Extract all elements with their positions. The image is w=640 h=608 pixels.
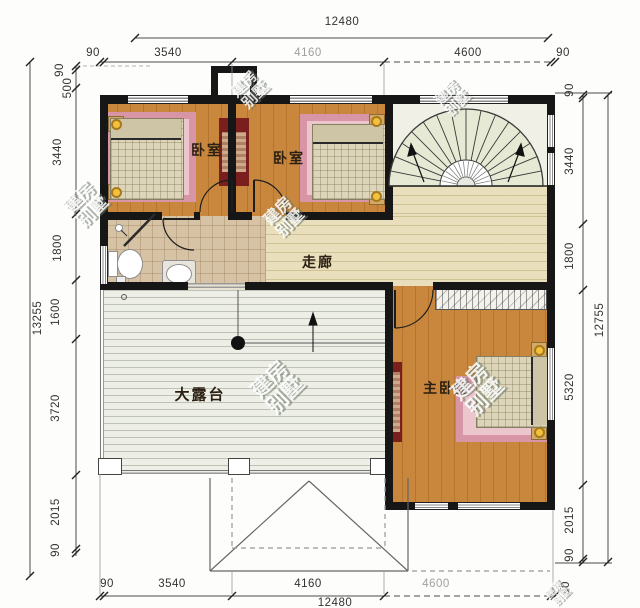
plan-linework <box>0 0 640 608</box>
dim-label: 3440 <box>52 138 64 166</box>
dim-label: 90 <box>50 543 62 557</box>
room-label-master-bedroom: 主卧室 <box>423 378 471 398</box>
dim-right-total: 12755 <box>594 303 606 337</box>
porch-roof <box>210 478 550 571</box>
dim-label: 90 <box>556 47 570 59</box>
dim-label: 1800 <box>52 234 64 262</box>
dim-label: 3540 <box>158 578 186 590</box>
dim-label: 4600 <box>422 578 450 590</box>
dim-label: 90 <box>564 83 576 97</box>
terrace-linework <box>122 290 386 352</box>
dim-bottom-total: 12480 <box>318 597 352 608</box>
dim-label: 2015 <box>50 498 62 526</box>
dim-label: 90 <box>560 581 572 595</box>
room-label-bedroom-left: 卧室 <box>191 140 223 160</box>
shower-corner <box>121 214 155 246</box>
room-label-bedroom-middle: 卧室 <box>273 148 305 168</box>
dim-label: 1600 <box>50 298 62 326</box>
door-arcs <box>163 180 433 328</box>
room-label-corridor: 走廊 <box>302 252 334 272</box>
dimension-lines <box>30 38 612 596</box>
dim-label: 3440 <box>564 147 576 175</box>
dim-label: 4160 <box>294 47 322 59</box>
room-label-terrace: 大露台 <box>174 384 225 405</box>
dim-label: 90 <box>564 548 576 562</box>
dim-label: 1800 <box>564 242 576 270</box>
dim-label: 3540 <box>154 47 182 59</box>
dim-label: 5320 <box>564 373 576 401</box>
dim-label: 90 <box>54 63 66 77</box>
spiral-stairs <box>389 109 547 186</box>
dim-label: 90 <box>86 47 100 59</box>
dim-label: 4160 <box>294 578 322 590</box>
dimension-ticks <box>26 34 612 600</box>
dim-label: 2015 <box>564 506 576 534</box>
dim-label: 4600 <box>454 47 482 59</box>
column-icon <box>231 336 245 350</box>
dim-left-total: 13255 <box>32 301 44 335</box>
dim-label: 3720 <box>50 394 62 422</box>
dim-top-total: 12480 <box>325 16 359 28</box>
floor-plan: 12480 90 3540 4160 4600 90 13255 90 500 … <box>0 0 640 608</box>
dim-label: 500 <box>62 78 74 99</box>
dim-label: 90 <box>100 578 114 590</box>
